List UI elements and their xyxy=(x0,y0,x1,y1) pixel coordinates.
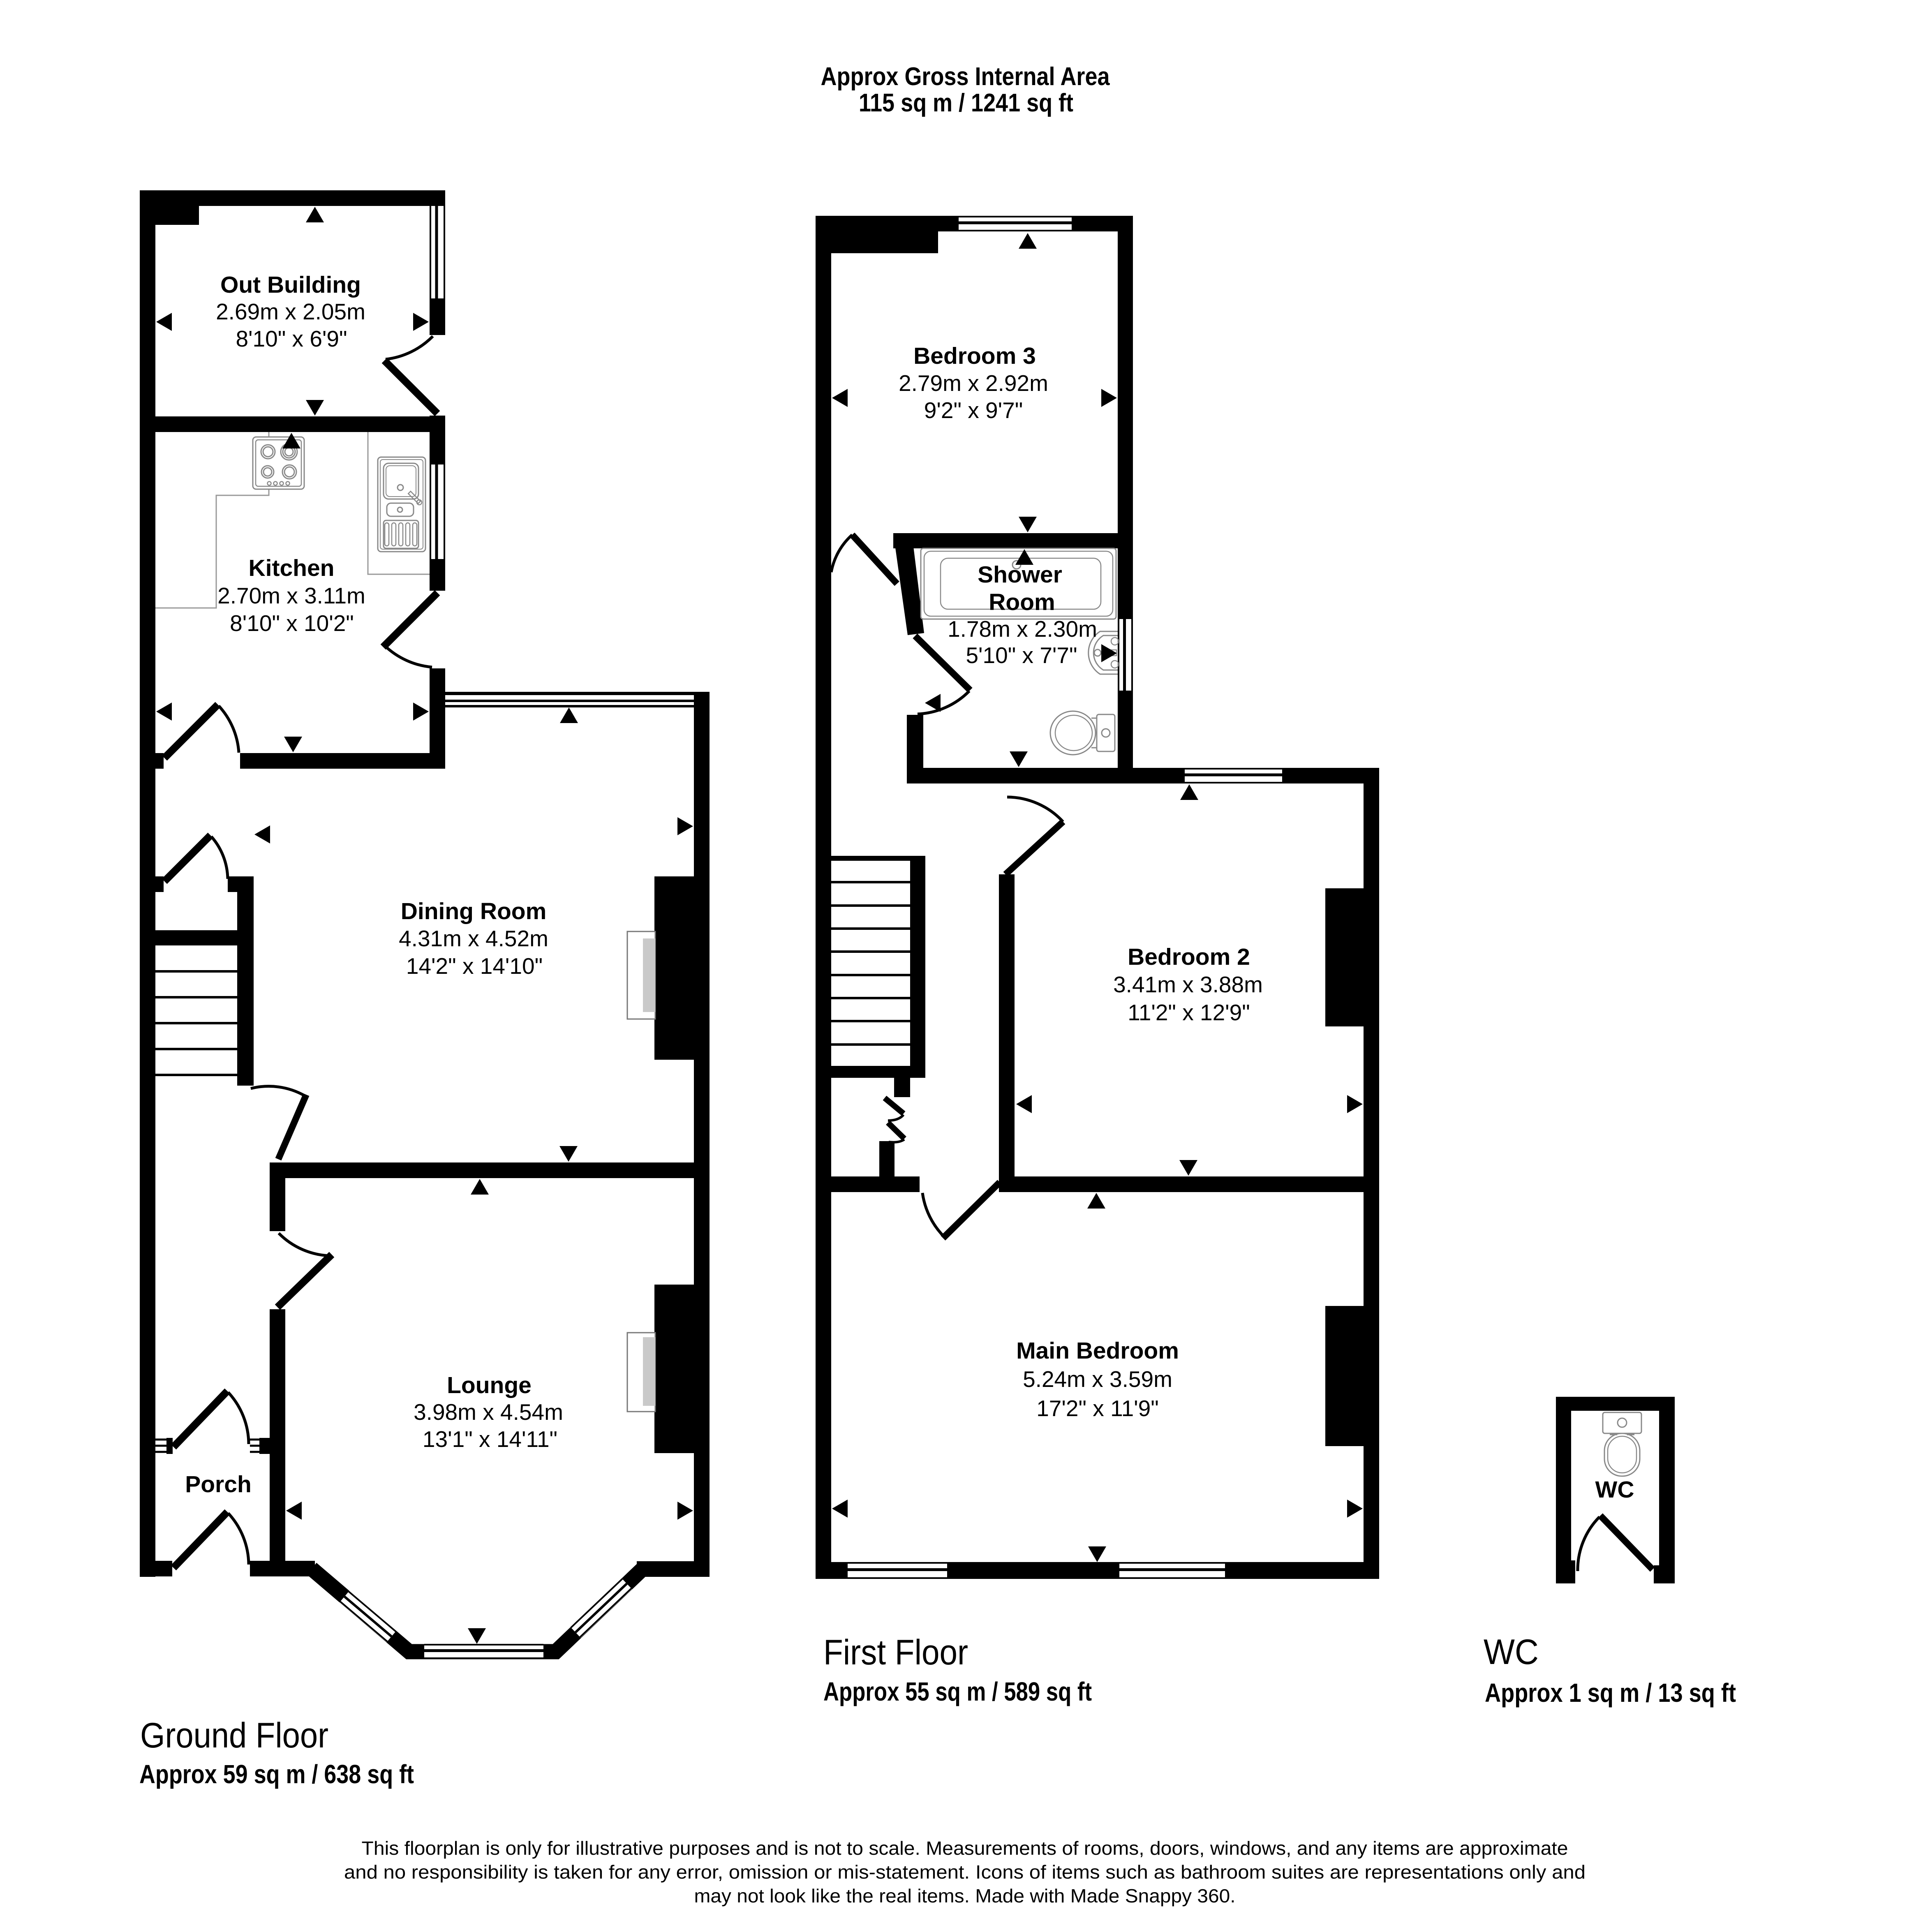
svg-text:2.79m x 2.92m: 2.79m x 2.92m xyxy=(899,370,1048,396)
svg-text:14'2" x 14'10": 14'2" x 14'10" xyxy=(406,953,543,979)
svg-text:3.41m x 3.88m: 3.41m x 3.88m xyxy=(1113,972,1263,997)
svg-text:11'2" x 12'9": 11'2" x 12'9" xyxy=(1128,1000,1250,1025)
svg-text:Main Bedroom: Main Bedroom xyxy=(1016,1338,1179,1364)
svg-text:Out Building: Out Building xyxy=(220,272,361,298)
svg-text:5'10" x 7'7": 5'10" x 7'7" xyxy=(966,642,1077,668)
svg-text:Ground Floor: Ground Floor xyxy=(140,1716,328,1755)
svg-text:WC: WC xyxy=(1484,1632,1539,1672)
svg-text:115 sq m / 1241 sq ft: 115 sq m / 1241 sq ft xyxy=(859,89,1073,117)
svg-text:Room: Room xyxy=(989,589,1055,615)
svg-text:Lounge: Lounge xyxy=(447,1372,532,1398)
svg-text:Bedroom 3: Bedroom 3 xyxy=(913,343,1036,369)
svg-text:3.98m x 4.54m: 3.98m x 4.54m xyxy=(414,1399,563,1425)
svg-text:Dining Room: Dining Room xyxy=(401,898,547,924)
svg-text:Approx 59 sq m / 638 sq ft: Approx 59 sq m / 638 sq ft xyxy=(139,1759,414,1789)
svg-text:13'1" x 14'11": 13'1" x 14'11" xyxy=(423,1426,557,1452)
svg-text:5.24m x 3.59m: 5.24m x 3.59m xyxy=(1023,1366,1172,1392)
svg-text:17'2" x 11'9": 17'2" x 11'9" xyxy=(1036,1396,1159,1421)
svg-text:8'10" x 6'9": 8'10" x 6'9" xyxy=(236,326,347,351)
svg-text:WC: WC xyxy=(1595,1477,1634,1503)
svg-text:Bedroom 2: Bedroom 2 xyxy=(1128,944,1250,970)
svg-text:Approx Gross Internal Area: Approx Gross Internal Area xyxy=(821,62,1110,91)
svg-text:Kitchen: Kitchen xyxy=(248,555,334,581)
svg-text:may not look like the real ite: may not look like the real items. Made w… xyxy=(694,1885,1236,1907)
svg-text:4.31m x 4.52m: 4.31m x 4.52m xyxy=(399,926,548,951)
svg-text:Approx 1 sq m / 13 sq ft: Approx 1 sq m / 13 sq ft xyxy=(1485,1678,1736,1708)
svg-text:2.70m x 3.11m: 2.70m x 3.11m xyxy=(217,583,365,608)
svg-text:9'2" x 9'7": 9'2" x 9'7" xyxy=(924,397,1023,423)
svg-text:8'10" x 10'2": 8'10" x 10'2" xyxy=(230,610,354,636)
svg-text:Shower: Shower xyxy=(978,562,1062,588)
svg-text:1.78m x 2.30m: 1.78m x 2.30m xyxy=(948,616,1097,642)
svg-text:First Floor: First Floor xyxy=(823,1633,968,1672)
svg-text:2.69m x 2.05m: 2.69m x 2.05m xyxy=(216,299,365,324)
svg-text:and no responsibility is taken: and no responsibility is taken for any e… xyxy=(344,1861,1586,1883)
svg-text:Approx 55 sq m / 589 sq ft: Approx 55 sq m / 589 sq ft xyxy=(823,1677,1092,1706)
svg-text:This floorplan is only for ill: This floorplan is only for illustrative … xyxy=(362,1837,1568,1859)
svg-text:Porch: Porch xyxy=(185,1471,252,1498)
